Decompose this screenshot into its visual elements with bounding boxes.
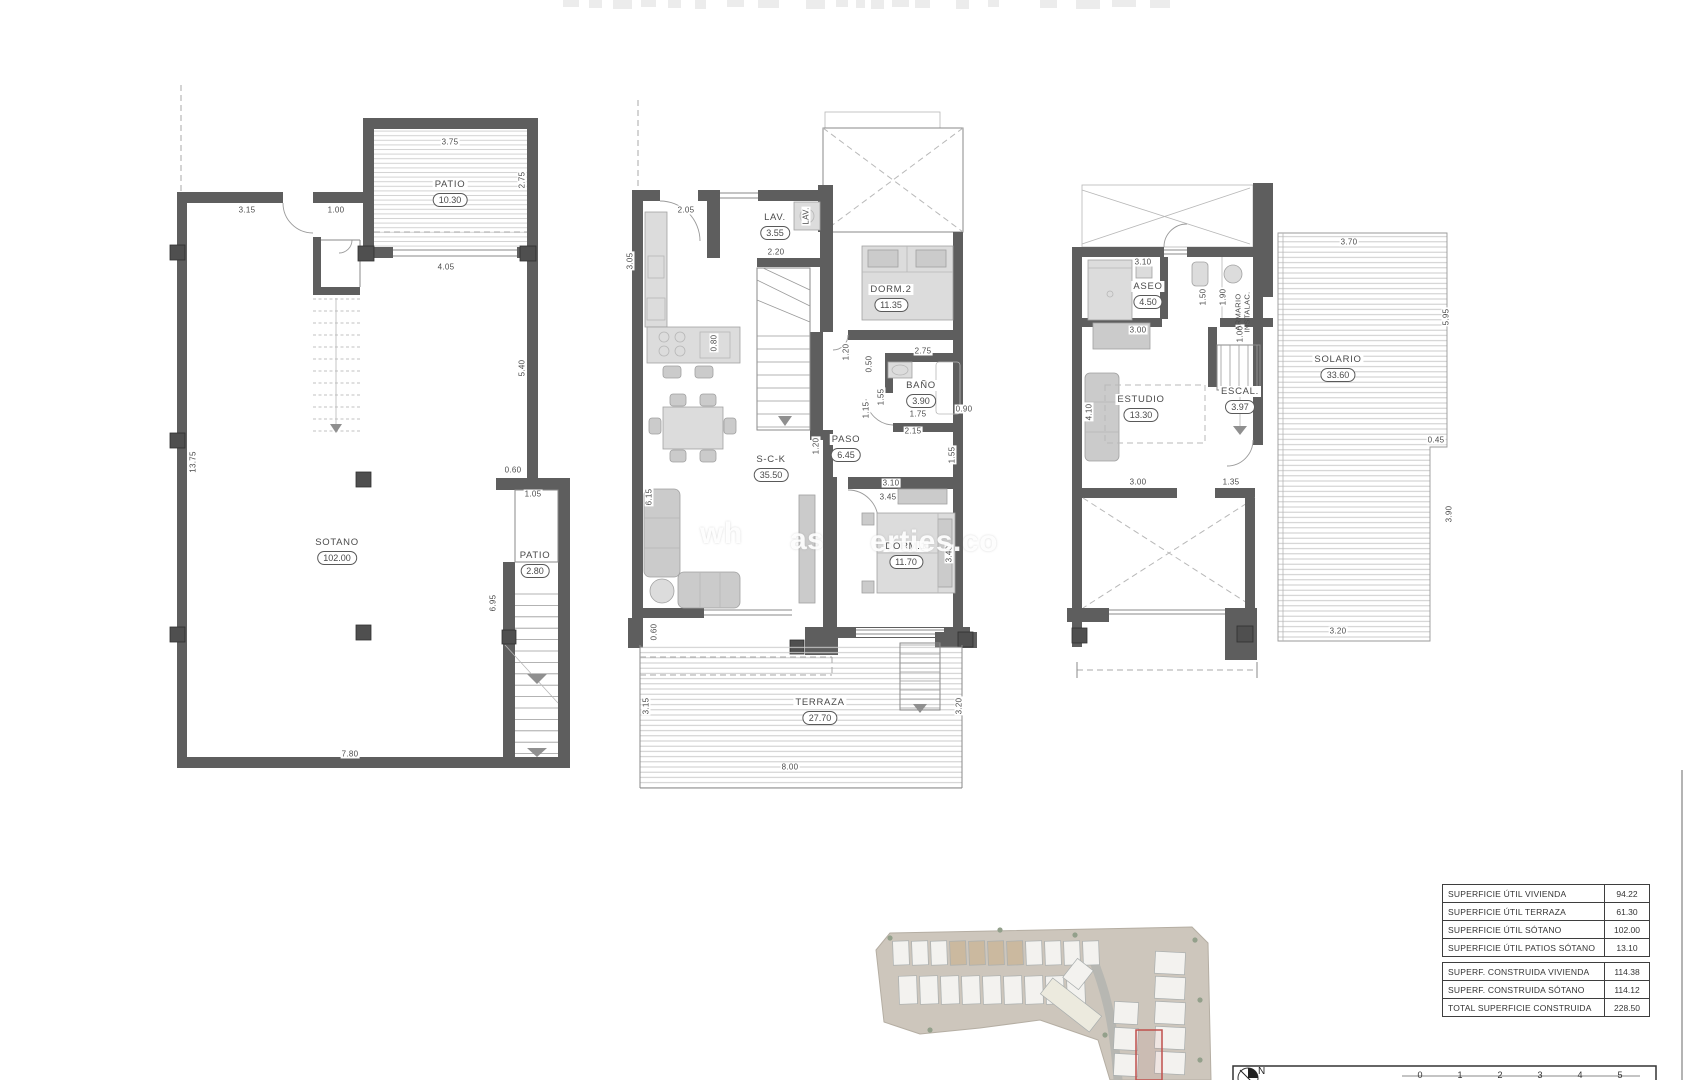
dim-label: 6.95 <box>489 594 498 613</box>
dim-label: 1.05 <box>524 490 543 499</box>
dim-label: 0.45 <box>1427 436 1446 445</box>
watermark-fragment: wh <box>700 517 743 551</box>
rotated-room-text: ARMARIOINSTALAC. <box>1235 292 1252 333</box>
area-table-2: SUPERF. CONSTRUIDA VIVIENDA114.38SUPERF.… <box>1442 962 1650 1017</box>
dim-label: 0.60 <box>504 466 523 475</box>
room-patio: PATIO2.80 <box>518 550 553 579</box>
room-name-label: S-C-K <box>754 454 789 465</box>
table-row: SUPERFICIE ÚTIL PATIOS SÓTANO13.10 <box>1443 938 1649 956</box>
dim-label: 3.20 <box>1329 627 1348 636</box>
table-row-label: SUPERFICIE ÚTIL VIVIENDA <box>1443 885 1604 902</box>
room-name-label: LAV. <box>760 212 790 223</box>
table-row-value: 114.12 <box>1604 981 1649 998</box>
room-name-label: SOLARIO <box>1312 354 1363 365</box>
room-area-value: 3.90 <box>906 394 936 408</box>
room-name-label: ESTUDIO <box>1115 394 1166 405</box>
table-row: SUPERFICIE ÚTIL SÓTANO102.00 <box>1443 920 1649 938</box>
table-row-label: SUPERFICIE ÚTIL PATIOS SÓTANO <box>1443 939 1604 956</box>
table-row-label: SUPERF. CONSTRUIDA SÓTANO <box>1443 981 1604 998</box>
room-area-value: 13.30 <box>1124 408 1159 422</box>
room-area-value: 2.80 <box>520 564 550 578</box>
room-dorm2: DORM.211.35 <box>868 284 913 313</box>
dim-label: 3.00 <box>1129 478 1148 487</box>
room-name-label: DORM.2 <box>868 284 913 295</box>
dim-label: 3.20 <box>955 697 964 716</box>
watermark-fragment: erties.co <box>870 525 998 559</box>
room-solario: SOLARIO33.60 <box>1312 354 1363 383</box>
dim-label: 1.55 <box>948 446 957 465</box>
table-row-label: TOTAL SUPERFICIE CONSTRUIDA <box>1443 999 1604 1016</box>
dim-label: 3.75 <box>441 138 460 147</box>
dim-label: 5.40 <box>518 359 527 378</box>
north-label: N <box>1258 1066 1265 1077</box>
table-row-value: 13.10 <box>1604 939 1649 956</box>
room-area-value: 102.00 <box>317 551 357 565</box>
dim-label: 3.05 <box>626 252 635 271</box>
dim-label: 2.05 <box>677 206 696 215</box>
table-row: SUPERFICIE ÚTIL VIVIENDA94.22 <box>1443 885 1649 902</box>
room-name-label: PASO <box>830 434 863 445</box>
dim-label: 0.80 <box>710 334 719 353</box>
dim-label: 1.20 <box>812 437 821 456</box>
table-row-value: 61.30 <box>1604 903 1649 920</box>
room-name-label: ESCAL. <box>1219 386 1261 397</box>
dim-label: 1.55 <box>877 388 886 407</box>
dim-label: 3.15 <box>238 206 257 215</box>
room-area-value: 11.35 <box>874 298 908 312</box>
room-area-value: 3.55 <box>760 226 790 240</box>
area-table-1: SUPERFICIE ÚTIL VIVIENDA94.22SUPERFICIE … <box>1442 884 1650 957</box>
floorplan-sheet: PATIO10.30SOTANO102.00PATIO2.803.752.753… <box>0 0 1700 1080</box>
dim-label: 2.75 <box>518 171 527 190</box>
scale-tick: 5 <box>1617 1070 1622 1080</box>
dim-label: 3.15 <box>642 697 651 716</box>
dim-label: 4.10 <box>1085 403 1094 422</box>
dim-label: 7.80 <box>341 750 360 759</box>
table-row-value: 114.38 <box>1604 963 1649 980</box>
room-name-label: BAÑO <box>904 380 938 391</box>
table-row: SUPERF. CONSTRUIDA VIVIENDA114.38 <box>1443 963 1649 980</box>
dim-label: 0.60 <box>650 623 659 642</box>
dim-label: 13.75 <box>189 450 198 474</box>
dim-label: 3.90 <box>1445 505 1454 524</box>
room-area-value: 35.50 <box>754 468 789 482</box>
scale-tick: 1 <box>1457 1070 1462 1080</box>
room-name-label: PATIO <box>518 550 553 561</box>
room-paso: PASO6.45 <box>830 434 863 463</box>
room-sck: S-C-K35.50 <box>754 454 789 483</box>
table-row: SUPERFICIE ÚTIL TERRAZA61.30 <box>1443 902 1649 920</box>
dim-label: LAV. <box>802 206 811 225</box>
room-patio: PATIO10.30 <box>433 179 468 208</box>
dim-label: 3.10 <box>882 479 901 488</box>
room-sotano: SOTANO102.00 <box>313 537 361 566</box>
scale-tick: 0 <box>1417 1070 1422 1080</box>
dim-label: 0.90 <box>955 405 974 414</box>
room-aseo: ASEO4.50 <box>1131 281 1164 310</box>
table-row-label: SUPERF. CONSTRUIDA VIVIENDA <box>1443 963 1604 980</box>
dim-label: 0.50 <box>865 355 874 374</box>
dim-label: 1.75 <box>909 410 928 419</box>
table-row-label: SUPERFICIE ÚTIL SÓTANO <box>1443 921 1604 938</box>
watermark-fragment: as <box>790 523 824 557</box>
dim-label: 1.50 <box>1199 288 1208 307</box>
room-name-label: ASEO <box>1131 281 1164 292</box>
scale-tick: 4 <box>1577 1070 1582 1080</box>
room-area-value: 4.50 <box>1133 295 1163 309</box>
dim-label: 3.70 <box>1340 238 1359 247</box>
dim-label: 2.75 <box>914 347 933 356</box>
table-row-label: SUPERFICIE ÚTIL TERRAZA <box>1443 903 1604 920</box>
dim-label: 1.90 <box>1219 288 1228 307</box>
room-bao: BAÑO3.90 <box>904 380 938 409</box>
dim-label: 2.20 <box>767 248 786 257</box>
dim-label: 3.10 <box>1134 258 1153 267</box>
room-terraza: TERRAZA27.70 <box>793 697 846 726</box>
room-area-value: 6.45 <box>831 448 861 462</box>
room-escal: ESCAL.3.97 <box>1219 386 1261 415</box>
table-row-value: 102.00 <box>1604 921 1649 938</box>
table-row: SUPERF. CONSTRUIDA SÓTANO114.12 <box>1443 980 1649 998</box>
room-area-value: 10.30 <box>433 193 468 207</box>
dim-label: 3.45 <box>879 493 898 502</box>
dim-label: 1.00 <box>327 206 346 215</box>
room-estudio: ESTUDIO13.30 <box>1115 394 1166 423</box>
table-row: TOTAL SUPERFICIE CONSTRUIDA228.50 <box>1443 998 1649 1016</box>
dim-label: 8.00 <box>781 763 800 772</box>
dim-label: 2.15 <box>904 427 923 436</box>
dim-label: 3.00 <box>1129 326 1148 335</box>
dim-label: 1.15 <box>862 401 871 420</box>
table-row-value: 228.50 <box>1604 999 1649 1016</box>
dim-label: 5.95 <box>1442 308 1451 327</box>
room-lav: LAV.3.55 <box>760 212 790 241</box>
table-row-value: 94.22 <box>1604 885 1649 902</box>
dim-label: 1.35 <box>1222 478 1241 487</box>
scale-tick: 2 <box>1497 1070 1502 1080</box>
dim-label: 1.20 <box>842 343 851 362</box>
room-area-value: 33.60 <box>1321 368 1356 382</box>
room-area-value: 3.97 <box>1225 400 1255 414</box>
room-name-label: TERRAZA <box>793 697 846 708</box>
dim-label: 6.15 <box>645 488 654 507</box>
scale-tick: 3 <box>1537 1070 1542 1080</box>
room-name-label: PATIO <box>433 179 468 190</box>
room-area-value: 27.70 <box>803 711 838 725</box>
dim-label: 4.05 <box>437 263 456 272</box>
room-name-label: SOTANO <box>313 537 361 548</box>
